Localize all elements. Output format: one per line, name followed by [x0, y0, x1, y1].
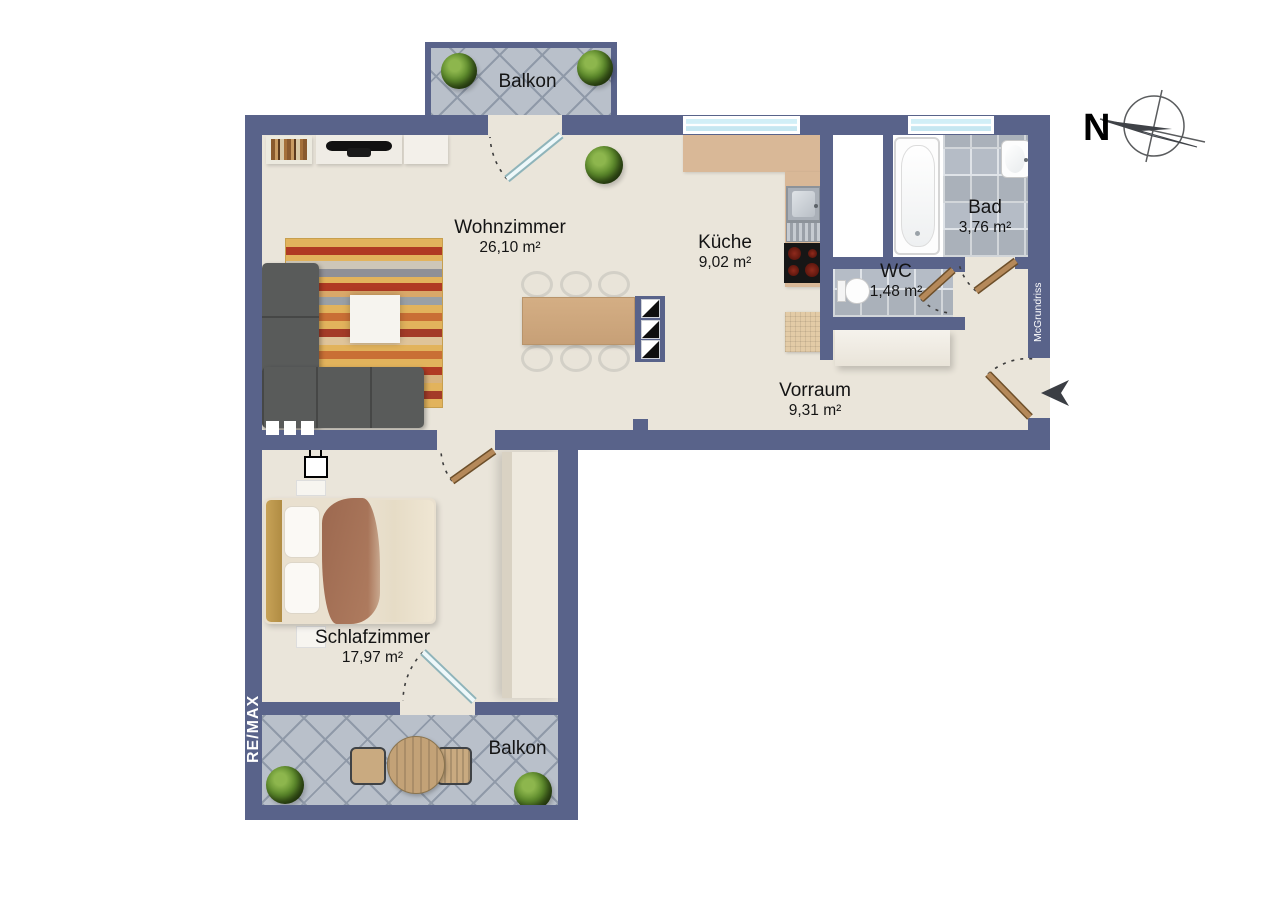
- door-bedroom: [452, 451, 494, 481]
- compass-icon: N: [1083, 90, 1205, 162]
- door-arc: [921, 299, 950, 313]
- wohnzimmer-label: Wohnzimmer 26,10 m²: [430, 217, 590, 257]
- schlafzimmer-label: Schlafzimmer 17,97 m²: [290, 627, 455, 667]
- door-arc: [490, 137, 507, 179]
- room-name: Wohnzimmer: [430, 217, 590, 239]
- room-name: Küche: [665, 232, 785, 254]
- room-name: Vorraum: [745, 380, 885, 402]
- room-area: 17,97 m²: [290, 649, 455, 667]
- compass-north-label: N: [1083, 107, 1110, 149]
- door-entrance: [988, 374, 1030, 417]
- room-name: Schlafzimmer: [290, 627, 455, 649]
- kueche-label: Küche 9,02 m²: [665, 232, 785, 272]
- room-area: 9,31 m²: [745, 402, 885, 420]
- door-arc: [441, 451, 452, 481]
- room-area: 9,02 m²: [665, 254, 785, 272]
- room-name: WC: [846, 261, 946, 283]
- bad-label: Bad 3,76 m²: [935, 197, 1035, 237]
- room-area: 3,76 m²: [935, 219, 1035, 237]
- door-bath: [976, 261, 1016, 291]
- wc-label: WC 1,48 m²: [846, 261, 946, 301]
- balkon-top-label: Balkon: [460, 71, 595, 93]
- entrance-arrow-icon: [1041, 380, 1069, 406]
- room-name: Bad: [935, 197, 1035, 219]
- room-name: Balkon: [450, 738, 585, 760]
- balkon-bottom-label: Balkon: [450, 738, 585, 760]
- floor-plan: RE/MAX McGrundriss: [0, 0, 1280, 905]
- room-name: Balkon: [460, 71, 595, 93]
- door-arc: [988, 359, 1034, 374]
- room-area: 1,48 m²: [846, 283, 946, 301]
- glass-door-living-balcony: [507, 135, 561, 179]
- door-arc: [959, 264, 976, 291]
- plan-overlay: N: [0, 0, 1280, 905]
- room-area: 26,10 m²: [430, 239, 590, 257]
- vorraum-label: Vorraum 9,31 m²: [745, 380, 885, 420]
